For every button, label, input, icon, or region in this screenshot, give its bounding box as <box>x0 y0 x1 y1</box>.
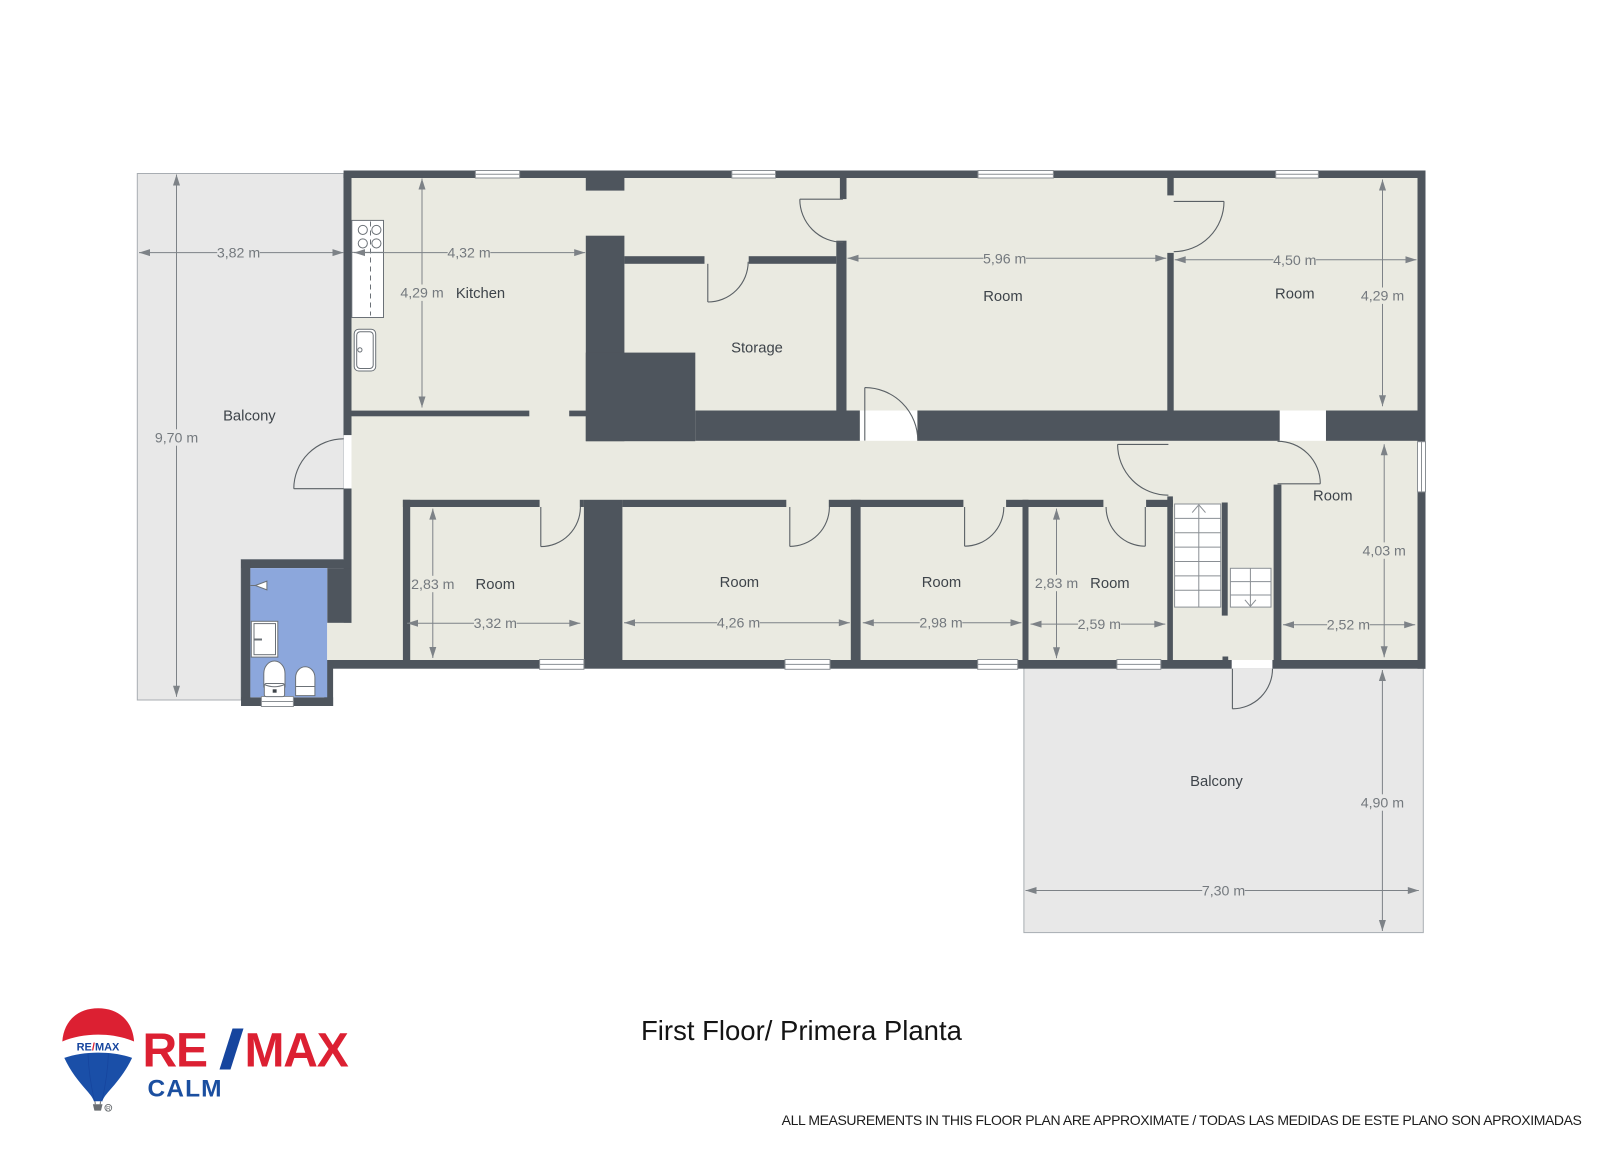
svg-text:2,83 m: 2,83 m <box>411 577 454 593</box>
svg-text:Balcony: Balcony <box>223 408 276 424</box>
svg-text:4,32 m: 4,32 m <box>447 246 490 262</box>
svg-text:5,96 m: 5,96 m <box>983 251 1026 267</box>
svg-text:Room: Room <box>922 575 961 591</box>
svg-text:R: R <box>106 1105 111 1112</box>
svg-text:2,98 m: 2,98 m <box>919 616 962 632</box>
svg-text:Balcony: Balcony <box>1190 774 1243 790</box>
svg-text:3,82 m: 3,82 m <box>217 246 260 262</box>
svg-text:MAX: MAX <box>245 1025 349 1078</box>
svg-text:4,29 m: 4,29 m <box>1361 289 1404 305</box>
svg-text:4,50 m: 4,50 m <box>1273 253 1316 269</box>
svg-text:RE/MAX: RE/MAX <box>77 1042 120 1054</box>
svg-text:Kitchen: Kitchen <box>456 286 505 302</box>
svg-text:2,83 m: 2,83 m <box>1035 576 1078 592</box>
svg-text:ALL MEASUREMENTS IN THIS FLOOR: ALL MEASUREMENTS IN THIS FLOOR PLAN ARE … <box>782 1112 1582 1128</box>
svg-text:4,03 m: 4,03 m <box>1363 544 1406 560</box>
svg-text:4,90 m: 4,90 m <box>1361 796 1404 812</box>
svg-text:2,59 m: 2,59 m <box>1078 617 1121 633</box>
svg-text:Storage: Storage <box>731 341 783 357</box>
svg-text:4,29 m: 4,29 m <box>400 286 443 302</box>
svg-text:3,32 m: 3,32 m <box>474 616 517 632</box>
svg-text:9,70 m: 9,70 m <box>155 431 198 447</box>
svg-text:Room: Room <box>476 577 515 593</box>
svg-text:Room: Room <box>1275 287 1314 303</box>
svg-text:7,30 m: 7,30 m <box>1202 884 1245 900</box>
svg-text:Room: Room <box>983 289 1022 305</box>
svg-text:First Floor/ Primera Planta: First Floor/ Primera Planta <box>641 1015 963 1046</box>
svg-text:4,26 m: 4,26 m <box>717 616 760 632</box>
svg-text:Room: Room <box>1313 489 1352 505</box>
svg-text:2,52 m: 2,52 m <box>1327 618 1370 634</box>
svg-text:Room: Room <box>1090 576 1129 592</box>
svg-text:CALM: CALM <box>148 1076 223 1103</box>
svg-text:RE: RE <box>143 1025 207 1078</box>
svg-text:Room: Room <box>720 575 759 591</box>
